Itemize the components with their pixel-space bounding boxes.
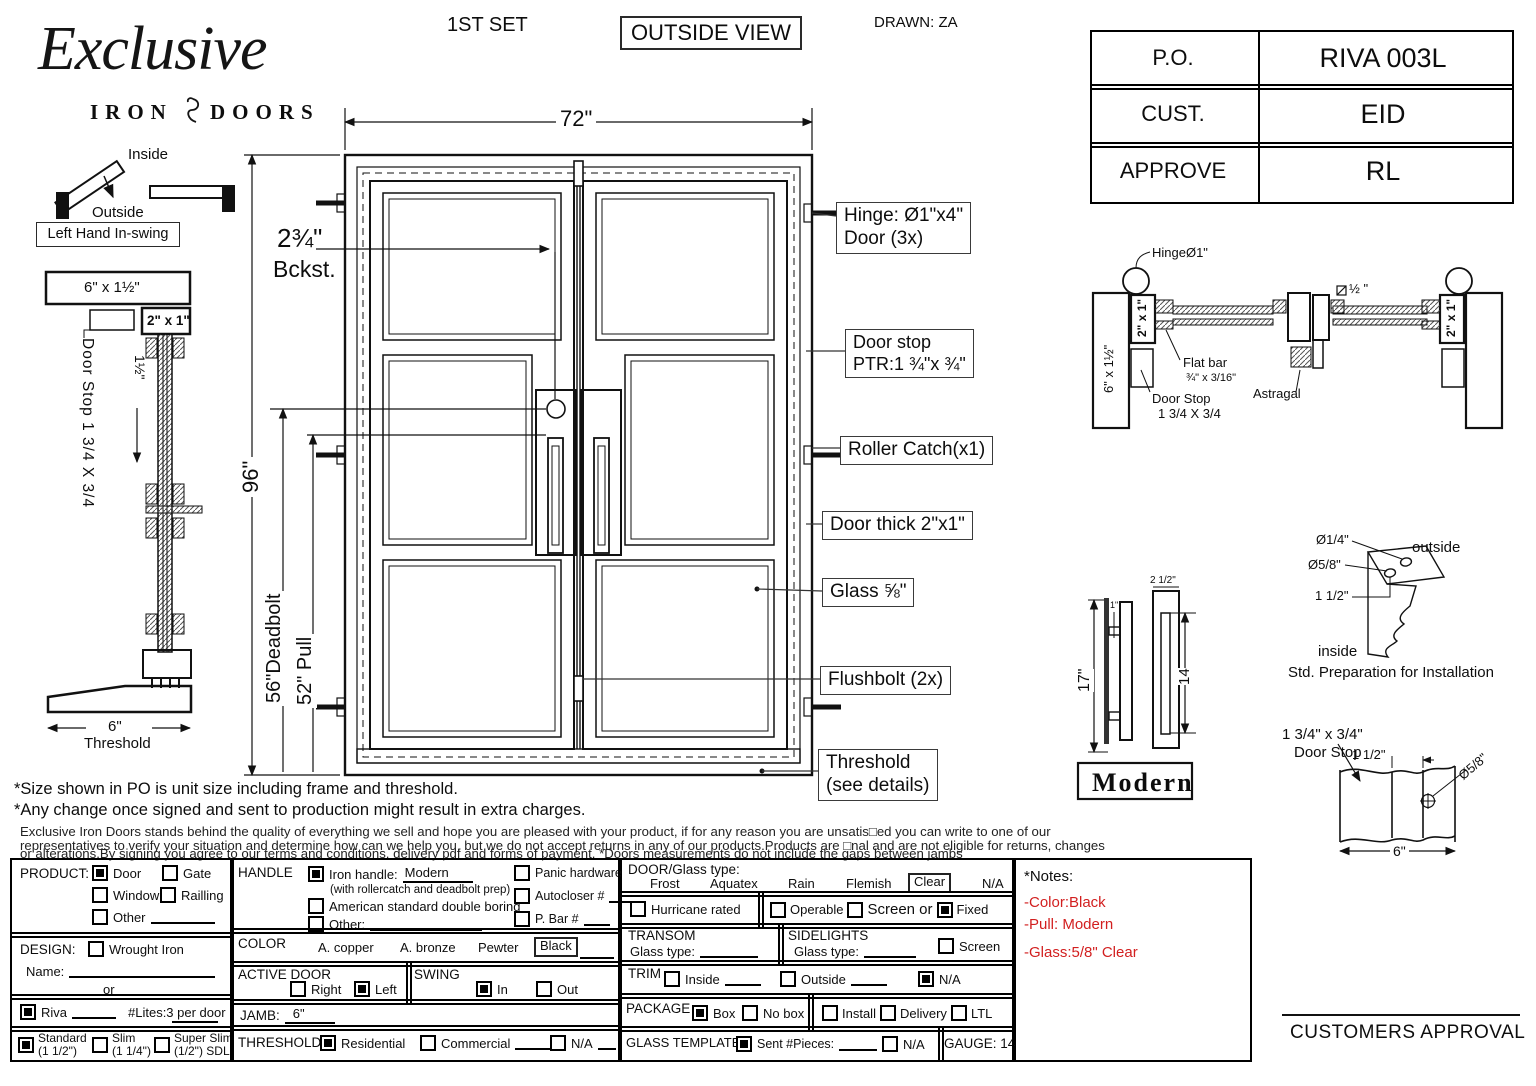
- trim-na-label: N/A: [939, 972, 961, 987]
- outside-view-text: OUTSIDE VIEW: [631, 20, 791, 45]
- sidelights-glass-label: Glass type:: [794, 944, 859, 959]
- po-label: P.O.: [1090, 30, 1256, 86]
- product-railing-checkbox[interactable]: [160, 887, 176, 903]
- stop-offset-dim: 1 1/2": [1352, 748, 1386, 763]
- trim-inside-label: Inside: [685, 972, 720, 987]
- slim-size: (1 1/4"): [112, 1044, 151, 1058]
- jamb-offset-dim: 1½": [132, 355, 148, 379]
- gauge-label: GAUGE: 14: [944, 1036, 1015, 1052]
- sidelights-screen-checkbox[interactable]: [938, 938, 954, 954]
- transom-glass-blank[interactable]: [700, 945, 758, 958]
- jamb-top-dim: 6" x 1½": [84, 279, 140, 296]
- superslim-checkbox[interactable]: [154, 1037, 170, 1053]
- jamb-frame-dim: 2" x 1": [147, 313, 190, 329]
- callout-glass-text: Glass ⅝": [830, 581, 906, 602]
- package-nobox-checkbox[interactable]: [742, 1005, 758, 1021]
- american-boring-label: American standard double boring: [329, 899, 521, 914]
- approve-label: APPROVE: [1090, 142, 1256, 200]
- disclaimer-line2: *Any change once signed and sent to prod…: [14, 801, 585, 820]
- riva-blank[interactable]: [72, 1006, 116, 1019]
- disclaimer-para1: Exclusive Iron Doors stands behind the q…: [20, 824, 1051, 839]
- operable-label: Operable: [790, 902, 843, 917]
- head-jamb-dim: 6" x 1½": [1102, 345, 1117, 393]
- pull-standoff-dim: 1": [1110, 600, 1118, 610]
- product-gate-checkbox[interactable]: [162, 865, 178, 881]
- threshold-label: THRESHOLD: [238, 1035, 321, 1051]
- standard-size: (1 1/2"): [38, 1044, 77, 1058]
- note-glass: -Glass:5/8" Clear: [1024, 944, 1138, 961]
- sent-pieces-checkbox[interactable]: [736, 1036, 752, 1052]
- callout-hinge-line2: Door (3x): [844, 228, 963, 251]
- standard-checkbox[interactable]: [18, 1037, 34, 1053]
- glass-flemish-option[interactable]: Flemish: [846, 877, 892, 892]
- sidelights-screen-label: Screen: [959, 939, 1000, 954]
- customers-approval-label: CUSTOMERS APPROVAL: [1290, 1022, 1525, 1044]
- jamb-door-stop-label: Door Stop 1 3/4 X 3/4: [78, 338, 96, 508]
- install-label: Install: [842, 1006, 876, 1021]
- logo-word-doors: DOORS: [210, 100, 320, 124]
- astragal-label: Astragal: [1253, 387, 1301, 402]
- disclaimer-line1: *Size shown in PO is unit size including…: [14, 780, 458, 799]
- operable-checkbox[interactable]: [770, 902, 786, 918]
- trim-na-checkbox[interactable]: [918, 971, 934, 987]
- prep-inside-label: inside: [1318, 643, 1357, 660]
- iron-handle-checkbox[interactable]: [308, 866, 324, 882]
- ltl-label: LTL: [971, 1006, 992, 1021]
- note-color: -Color:Black: [1024, 894, 1106, 911]
- trim-outside-label: Outside: [801, 972, 846, 987]
- customers-approval-line[interactable]: [1282, 1014, 1520, 1016]
- sidelights-glass-blank[interactable]: [864, 945, 916, 958]
- gauge-cell: GAUGE: 14: [938, 1026, 1016, 1062]
- notes-title: *Notes:: [1024, 868, 1073, 885]
- frame-style-cell: Standard(1 1/2") Slim(1 1/4") Super Slim…: [10, 1026, 234, 1062]
- stop-size-dim: 1 3/4" x 3/4": [1282, 726, 1363, 743]
- glass-clear-option[interactable]: Clear: [908, 873, 951, 893]
- glass-rain-option[interactable]: Rain: [788, 877, 815, 892]
- trim-label: TRIM: [628, 966, 661, 982]
- callout-glass: Glass ⅝": [822, 578, 914, 607]
- glass-template-cell: GLASS TEMPLATE Sent #Pieces: N/A: [618, 1026, 944, 1062]
- iron-handle-note: (with rollercatch and deadbolt prep): [330, 884, 510, 897]
- backset-word: Bckst.: [273, 256, 336, 282]
- threshold-na-checkbox[interactable]: [550, 1035, 566, 1051]
- fixed-label: Fixed: [957, 902, 989, 917]
- color-blank[interactable]: [580, 946, 614, 959]
- threshold-na-label: N/A: [571, 1036, 593, 1051]
- door-width-dim: 72": [556, 106, 596, 131]
- sidelights-label: SIDELIGHTS: [788, 928, 868, 944]
- pull-height-label: 17": [1076, 669, 1094, 692]
- american-boring-checkbox[interactable]: [308, 898, 324, 914]
- head-door-stop-label: Door Stop: [1152, 392, 1211, 407]
- color-copper-option[interactable]: A. copper: [318, 941, 374, 956]
- callout-door-thick: Door thick 2"x1": [822, 511, 973, 540]
- pbar-checkbox[interactable]: [514, 911, 530, 927]
- riva-label: Riva: [41, 1005, 67, 1020]
- hand-swing-tag: Left Hand In-swing: [36, 222, 180, 247]
- deadbolt-height-dim: 56"Deadbolt: [263, 591, 286, 706]
- install-checkbox[interactable]: [822, 1005, 838, 1021]
- package-label: PACKAGE: [626, 1001, 690, 1017]
- po-value: RIVA 003L: [1256, 30, 1510, 86]
- glass-frost-option[interactable]: Frost: [650, 877, 680, 892]
- callout-threshold-line2: (see details): [826, 775, 930, 798]
- threshold-residential-label: Residential: [341, 1036, 405, 1051]
- delivery-label: Delivery: [900, 1006, 947, 1021]
- color-bronze-option[interactable]: A. bronze: [400, 941, 456, 956]
- threshold-commercial-label: Commercial: [441, 1036, 510, 1051]
- superslim-label: Super Slim: [174, 1031, 233, 1045]
- hurricane-checkbox[interactable]: [630, 901, 646, 917]
- callout-hinge: Hinge: Ø1"x4" Door (3x): [836, 202, 971, 254]
- pull-slot-dim: 14: [1176, 668, 1193, 685]
- glass-template-label: GLASS TEMPLATE: [626, 1036, 740, 1051]
- standard-label: Standard: [38, 1031, 87, 1045]
- template-na-checkbox[interactable]: [882, 1036, 898, 1052]
- design-name-label: Name:: [26, 964, 64, 979]
- trim-outside-checkbox[interactable]: [780, 971, 796, 987]
- prep-outside-label: outside: [1412, 539, 1460, 556]
- door-dimension-lines: [244, 108, 812, 775]
- panic-label: Panic hardware: [535, 866, 622, 880]
- trim-inside-checkbox[interactable]: [664, 971, 680, 987]
- active-left-label: Left: [375, 982, 397, 997]
- cust-value: EID: [1256, 84, 1510, 144]
- trim-outside-blank[interactable]: [851, 973, 887, 986]
- autocloser-checkbox[interactable]: [514, 888, 530, 904]
- backset-dim: 2¾": [277, 224, 322, 254]
- swing-out-label: Out: [557, 982, 578, 997]
- iron-handle-value[interactable]: Modern: [403, 865, 473, 883]
- installation-prep-detail-drawing: [1345, 541, 1444, 657]
- approve-value: RL: [1256, 142, 1510, 200]
- package-box-checkbox[interactable]: [692, 1005, 708, 1021]
- slim-checkbox[interactable]: [92, 1037, 108, 1053]
- design-cell: DESIGN: Wrought Iron Name: or: [10, 932, 234, 1000]
- outside-view-label: OUTSIDE VIEW: [620, 16, 802, 50]
- package-box-label: Box: [713, 1006, 735, 1021]
- set-label: 1ST SET: [447, 14, 528, 37]
- ltl-checkbox[interactable]: [951, 1005, 967, 1021]
- superslim-size: (1/2") SDL: [174, 1044, 230, 1058]
- pbar-blank[interactable]: [584, 913, 610, 926]
- note-pull: -Pull: Modern: [1024, 916, 1113, 933]
- callout-flushbolt-text: Flushbolt (2x): [828, 669, 943, 690]
- jamb-value[interactable]: 6": [285, 1006, 335, 1024]
- transom-label: TRANSOM: [628, 928, 696, 944]
- callout-threshold: Threshold (see details): [818, 749, 938, 801]
- lites-blank: [172, 1010, 218, 1023]
- design-wrought-label: Wrought Iron: [109, 942, 184, 957]
- product-gate-label: Gate: [183, 866, 211, 881]
- flat-bar-label: Flat bar: [1183, 356, 1227, 371]
- handle-cell: HANDLE Iron handle:Modern (with rollerca…: [230, 858, 622, 934]
- hand-swing-text: Left Hand In-swing: [48, 226, 169, 242]
- product-label: PRODUCT:: [20, 866, 89, 882]
- jamb-label: JAMB:: [240, 1008, 280, 1023]
- flat-bar-dim: ¾" x 3/16": [1186, 372, 1236, 385]
- pull-width-dim: 2 1/2": [1150, 575, 1176, 587]
- prep-hole1-dim: Ø1/4": [1316, 533, 1349, 548]
- product-window-label: Window: [113, 888, 159, 903]
- cust-label: CUST.: [1090, 84, 1256, 144]
- design-label: DESIGN:: [20, 942, 76, 958]
- swing-direction-icon: [55, 161, 235, 219]
- stop-width-dim: 6": [1390, 843, 1409, 859]
- door-height-dim: 96": [238, 457, 263, 497]
- callout-leader-lines: [583, 213, 845, 774]
- logo-scroll-icon: [182, 96, 204, 131]
- delivery-checkbox[interactable]: [880, 1005, 896, 1021]
- screen-or-label: Screen or: [867, 901, 932, 918]
- color-pewter-option[interactable]: Pewter: [478, 941, 518, 956]
- threshold-residential-checkbox[interactable]: [320, 1035, 336, 1051]
- door-elevation-drawing: [316, 155, 841, 775]
- active-left-checkbox[interactable]: [354, 981, 370, 997]
- spec-sheet: Exclusive IRON DOORS 1ST SET OUTSIDE VIE…: [0, 0, 1536, 1086]
- callout-flushbolt: Flushbolt (2x): [820, 666, 951, 695]
- callout-door-stop-line1: Door stop: [853, 332, 966, 354]
- product-railing-label: Railling: [181, 888, 224, 903]
- threshold-commercial-checkbox[interactable]: [420, 1035, 436, 1051]
- iron-handle-label: Iron handle:: [329, 867, 398, 882]
- head-frame-dim-right: 2" x 1": [1445, 299, 1459, 337]
- head-door-stop-dim: 1 3/4 X 3/4: [1158, 407, 1221, 422]
- product-door-label: Door: [113, 866, 141, 881]
- pull-height-dim: 52" Pull: [294, 634, 317, 708]
- color-black-option[interactable]: Black: [534, 937, 578, 957]
- handle-label: HANDLE: [238, 865, 293, 881]
- swing-in-label: In: [497, 982, 508, 997]
- callout-threshold-line1: Threshold: [826, 752, 930, 775]
- screen-checkbox[interactable]: [847, 902, 863, 918]
- product-other-checkbox[interactable]: [92, 909, 108, 925]
- product-door-checkbox[interactable]: [92, 865, 108, 881]
- package-nobox-label: No box: [763, 1006, 804, 1021]
- jamb-threshold-section-drawing: [46, 272, 202, 728]
- callout-door-stop: Door stop PTR:1 ¾"x ¾": [845, 329, 974, 378]
- hurricane-label: Hurricane rated: [651, 902, 741, 917]
- product-other-blank[interactable]: [151, 911, 215, 924]
- swing-out-checkbox[interactable]: [536, 981, 552, 997]
- autocloser-label: Autocloser #: [535, 889, 604, 903]
- design-wrought-checkbox[interactable]: [88, 941, 104, 957]
- product-window-checkbox[interactable]: [92, 887, 108, 903]
- sent-pieces-blank[interactable]: [839, 1038, 877, 1051]
- logo-script-name: Exclusive: [38, 14, 267, 85]
- riva-checkbox[interactable]: [20, 1004, 36, 1020]
- head-hinge-label: HingeØ1": [1152, 246, 1208, 261]
- design-name-blank[interactable]: [69, 965, 215, 978]
- swing-inside-label: Inside: [128, 146, 168, 163]
- pull-style-name: Modern: [1092, 768, 1194, 798]
- threshold-cell: THRESHOLD Residential Commercial N/A: [230, 1025, 622, 1062]
- prep-offset-dim: 1 1/2": [1315, 589, 1349, 604]
- prep-hole2-dim: Ø5/8": [1308, 558, 1341, 573]
- threshold-na-blank[interactable]: [598, 1037, 616, 1050]
- head-gap-dim: ½ ": [1349, 282, 1368, 297]
- drawn-by-label: DRAWN: ZA: [874, 14, 958, 31]
- callout-roller-catch: Roller Catch(x1): [840, 436, 993, 465]
- sent-pieces-label: Sent #Pieces:: [757, 1037, 834, 1051]
- glass-na-option[interactable]: N/A: [982, 877, 1004, 892]
- callout-door-stop-line2: PTR:1 ¾"x ¾": [853, 354, 966, 376]
- fixed-checkbox[interactable]: [937, 902, 953, 918]
- callout-thick-text: Door thick 2"x1": [830, 514, 965, 535]
- template-na-label: N/A: [903, 1037, 925, 1052]
- swing-outside-label: Outside: [92, 204, 144, 221]
- threshold-width-dim: 6": [108, 718, 122, 735]
- color-label: COLOR: [238, 936, 286, 952]
- threshold-word: Threshold: [84, 735, 151, 752]
- head-frame-dim-left: 2" x 1": [1136, 299, 1150, 337]
- swing-label: SWING: [414, 967, 460, 983]
- glass-aquatex-option[interactable]: Aquatex: [710, 877, 758, 892]
- logo-word-iron: IRON: [90, 100, 173, 124]
- callout-hinge-line1: Hinge: Ø1"x4": [844, 205, 963, 228]
- prep-caption: Std. Preparation for Installation: [1288, 664, 1494, 681]
- product-cell: PRODUCT: Door Gate Window Railling Other: [10, 858, 234, 938]
- active-right-label: Right: [311, 982, 341, 997]
- notes-box: *Notes: -Color:Black -Pull: Modern -Glas…: [1012, 858, 1252, 1062]
- active-right-checkbox[interactable]: [290, 981, 306, 997]
- swing-in-checkbox[interactable]: [476, 981, 492, 997]
- panic-checkbox[interactable]: [514, 865, 530, 881]
- product-other-label: Other: [113, 910, 146, 925]
- pbar-label: P. Bar #: [535, 912, 579, 926]
- callout-roller-text: Roller Catch(x1): [848, 439, 985, 460]
- trim-inside-blank[interactable]: [725, 973, 761, 986]
- transom-glass-label: Glass type:: [630, 944, 695, 959]
- slim-label: Slim: [112, 1031, 135, 1045]
